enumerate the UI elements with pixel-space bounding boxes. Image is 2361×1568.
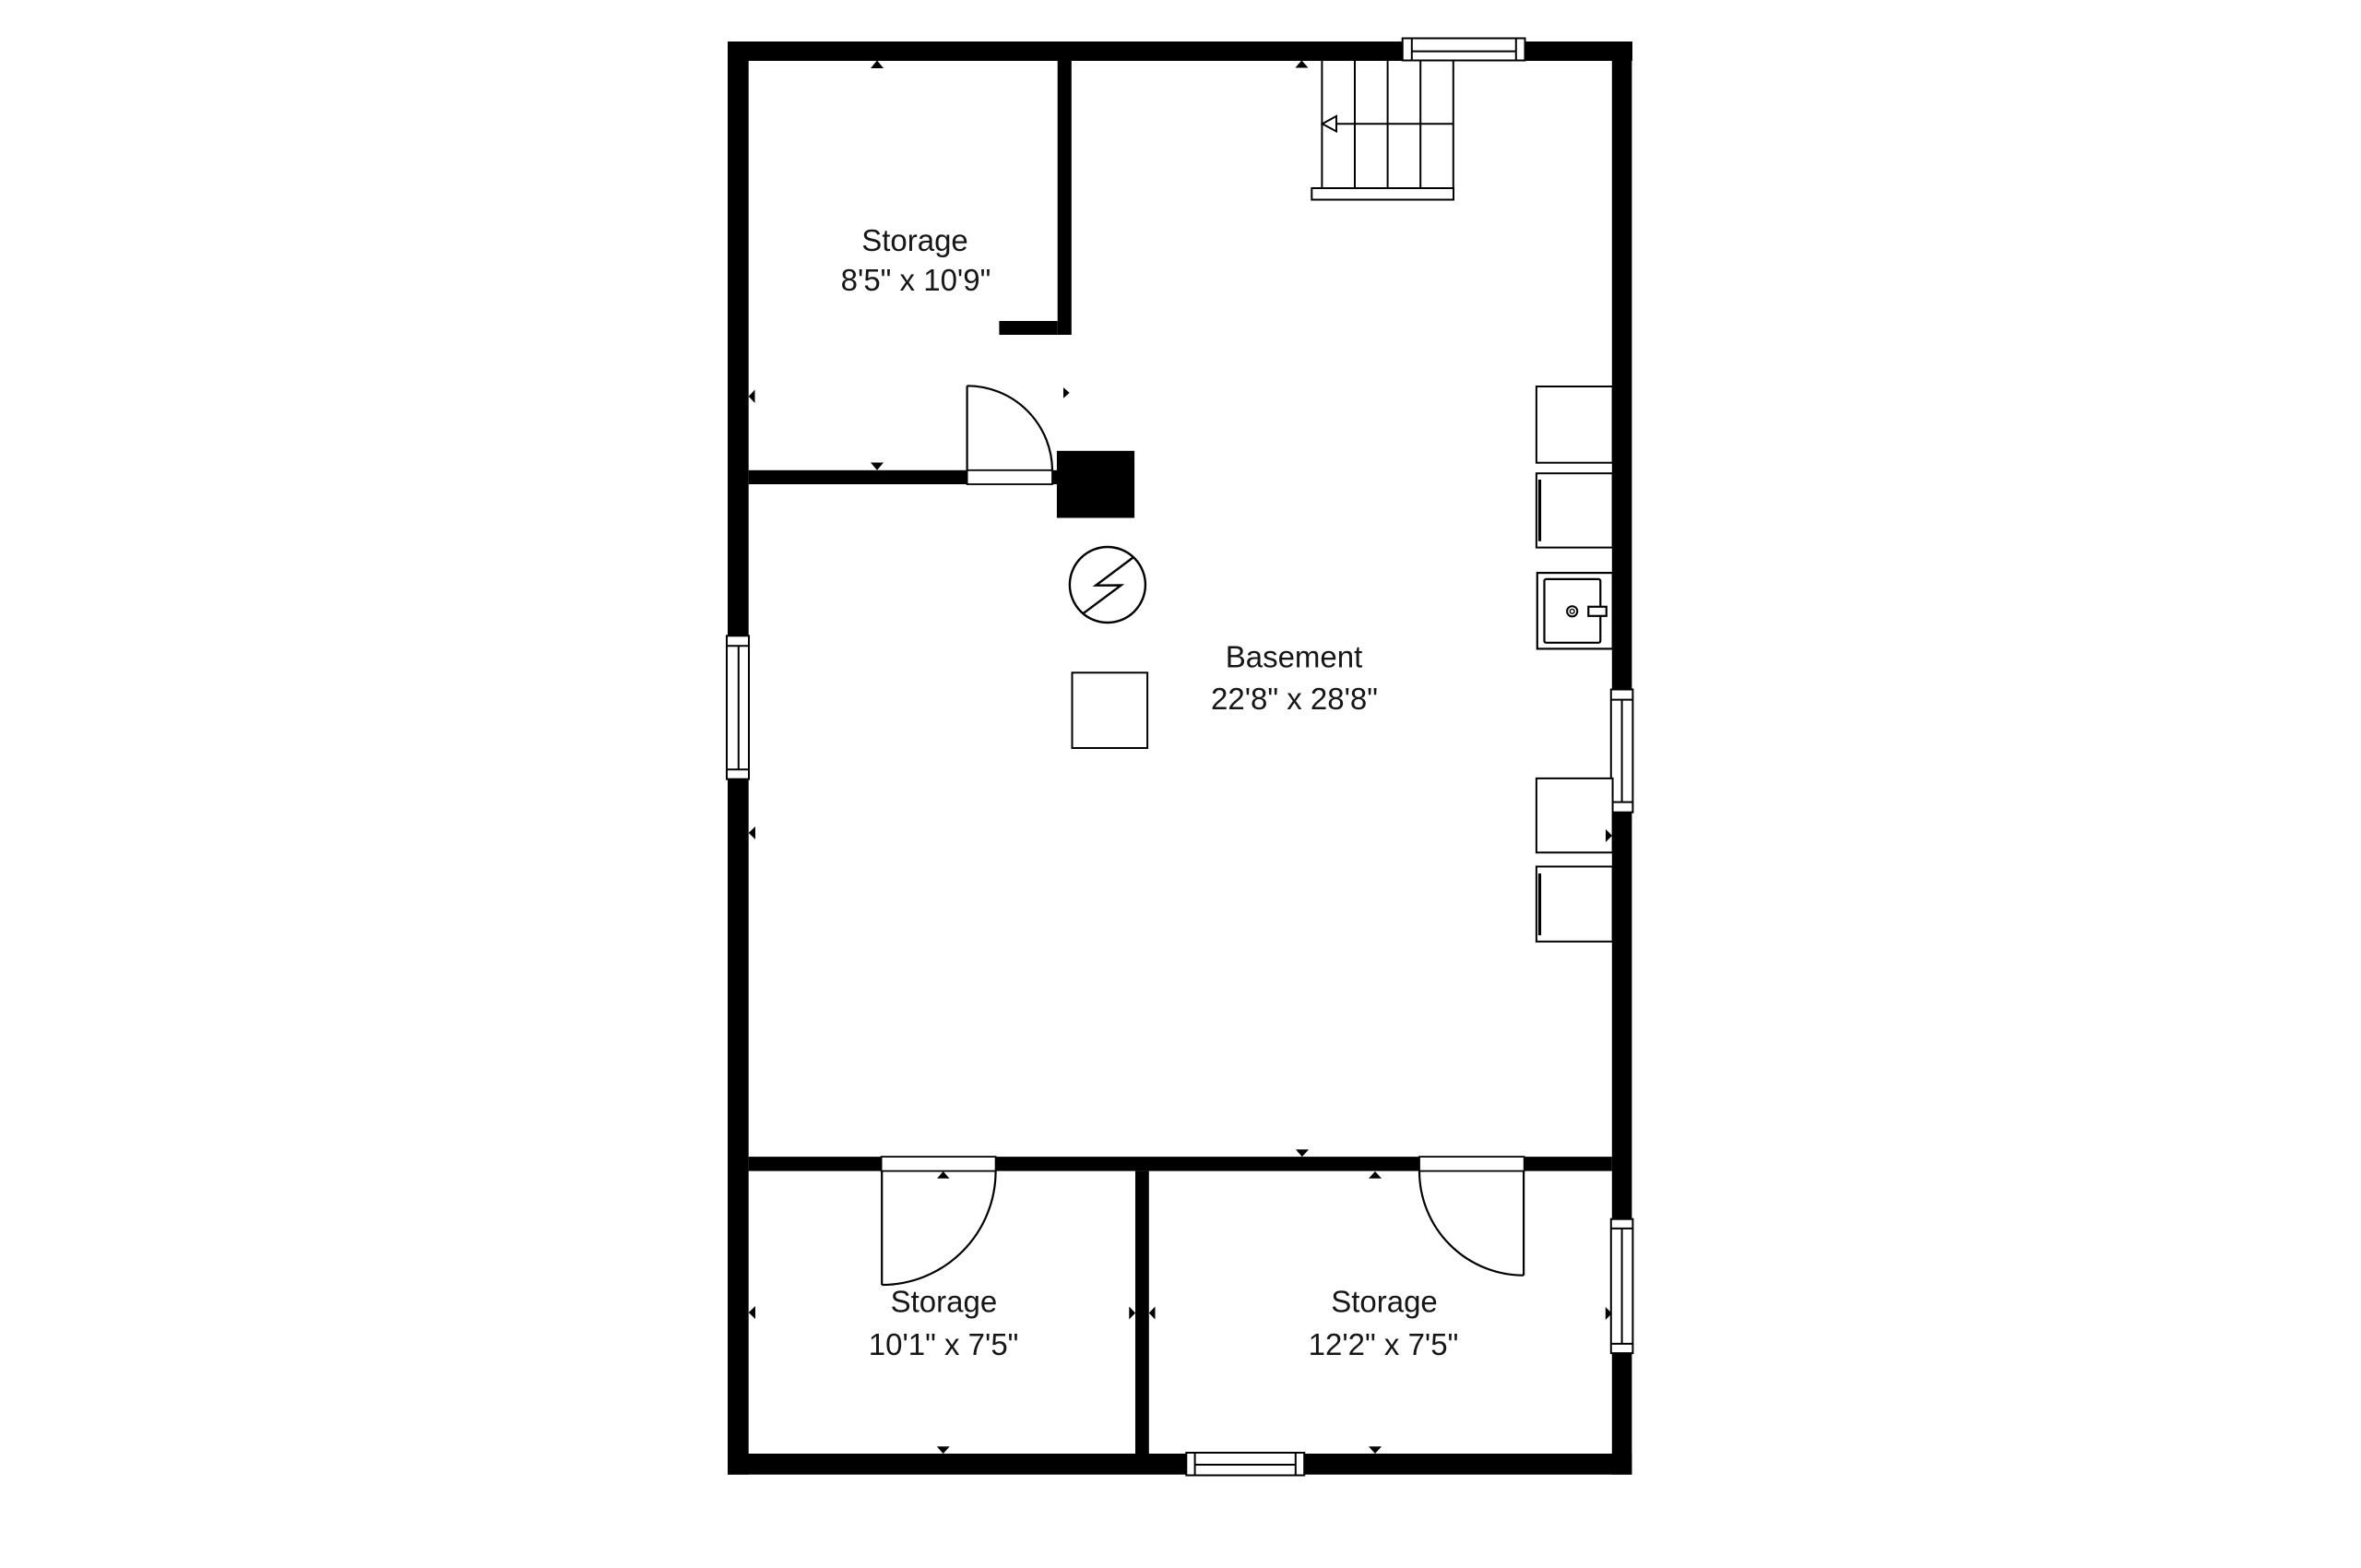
svg-text:12'2" x 7'5": 12'2" x 7'5" (1309, 1327, 1459, 1361)
svg-text:Basement: Basement (1226, 640, 1363, 674)
svg-text:Storage: Storage (1331, 1284, 1438, 1318)
svg-text:Storage: Storage (891, 1284, 998, 1318)
svg-text:22'8" x 28'8": 22'8" x 28'8" (1211, 682, 1378, 716)
svg-text:10'1" x 7'5": 10'1" x 7'5" (869, 1327, 1019, 1361)
svg-text:Storage: Storage (861, 223, 968, 257)
svg-text:8'5" x 10'9": 8'5" x 10'9" (841, 263, 991, 297)
